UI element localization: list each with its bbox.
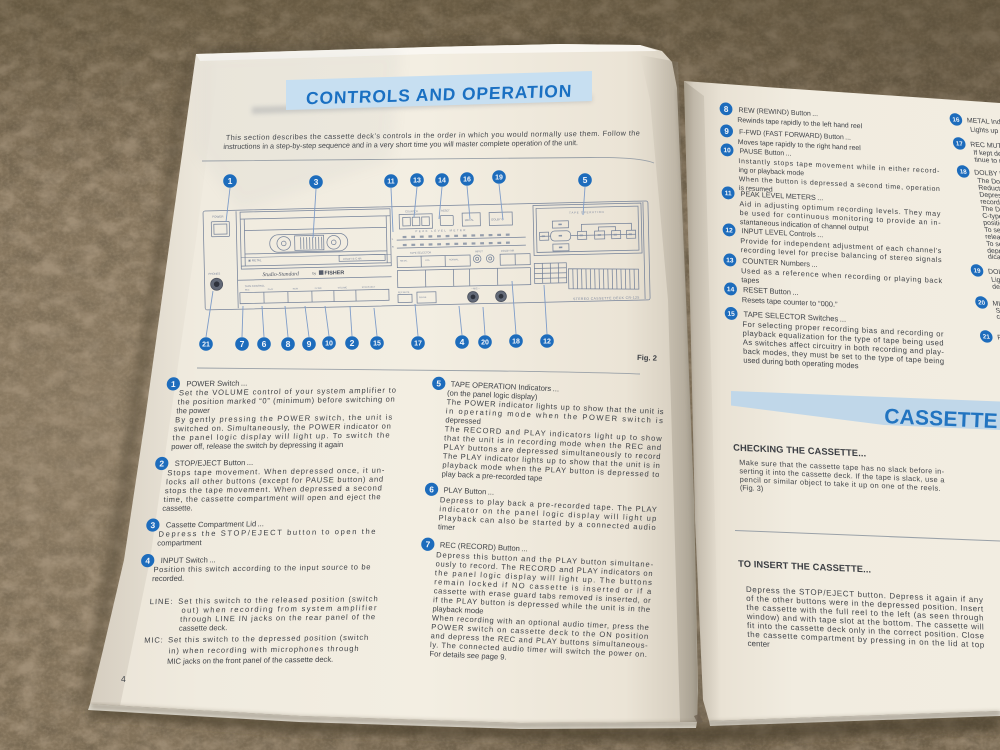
- svg-text:16: 16: [463, 176, 471, 183]
- svg-text:through LINE IN jacks on the r: through LINE IN jacks on the rear panel …: [180, 612, 375, 624]
- svg-text:recorded.: recorded.: [152, 574, 185, 583]
- svg-text:REC: REC: [245, 289, 250, 291]
- svg-text:1: 1: [228, 176, 233, 186]
- svg-text:14: 14: [727, 286, 735, 293]
- svg-text:Rewinds tape rapidly to the le: Rewinds tape rapidly to the left hand re…: [737, 117, 862, 130]
- svg-text:2: 2: [159, 458, 164, 468]
- svg-text:PAUSE: PAUSE: [419, 296, 427, 299]
- svg-text:4: 4: [145, 556, 150, 566]
- svg-text:8: 8: [724, 105, 729, 114]
- svg-text:9: 9: [307, 339, 312, 349]
- svg-text:3: 3: [150, 520, 155, 530]
- svg-text:TAPE CONTROL: TAPE CONTROL: [245, 284, 266, 288]
- svg-text:timer: timer: [438, 522, 456, 532]
- svg-text:19: 19: [495, 174, 503, 181]
- svg-text:in) when recording with microp: in) when recording with microphones thro…: [168, 644, 358, 655]
- svg-text:STOP/EJECT: STOP/EJECT: [362, 287, 376, 289]
- svg-text:REC MUTE: REC MUTE: [398, 292, 410, 294]
- svg-text:4: 4: [121, 674, 126, 684]
- svg-text:12: 12: [725, 227, 733, 234]
- svg-text:tapes: tapes: [741, 275, 759, 285]
- svg-text:METAL: METAL: [400, 259, 408, 262]
- svg-text:time, the cassette compartment: time, the cassette compartment will open…: [163, 492, 380, 504]
- svg-text:4: 4: [460, 337, 465, 347]
- svg-text:17: 17: [414, 340, 422, 347]
- svg-text:CASSETTE: CASSETTE: [884, 405, 999, 433]
- svg-text:Position this switch according: Position this switch according to the in…: [153, 562, 370, 574]
- svg-text:the power: the power: [176, 406, 210, 415]
- svg-text:▣ METAL: ▣ METAL: [248, 258, 262, 262]
- svg-text:power off, release the switch: power off, release the switch by depress…: [171, 440, 343, 451]
- svg-text:L: L: [392, 237, 394, 241]
- svg-text:CHECKING THE CASSETTE...: CHECKING THE CASSETTE...: [733, 443, 866, 459]
- svg-text:Fig. 2: Fig. 2: [637, 353, 657, 363]
- svg-text:12: 12: [543, 338, 551, 345]
- svg-text:cassette.: cassette.: [162, 503, 193, 512]
- svg-text:VOLUME: VOLUME: [338, 287, 348, 289]
- svg-text:10: 10: [325, 340, 333, 347]
- svg-text:13: 13: [413, 177, 421, 184]
- svg-text:PAUSE Button ...: PAUSE Button ...: [740, 148, 792, 158]
- svg-text:15: 15: [727, 311, 735, 318]
- svg-text:13: 13: [726, 257, 734, 264]
- svg-text:TO INSERT THE CASSETTE...: TO INSERT THE CASSETTE...: [738, 559, 871, 575]
- svg-text:8: 8: [286, 339, 291, 349]
- svg-text:14: 14: [438, 177, 446, 184]
- svg-text:PEAK LEVEL METER: PEAK LEVEL METER: [415, 228, 466, 233]
- svg-text:PHONES: PHONES: [208, 272, 220, 276]
- svg-text:POWER: POWER: [212, 215, 224, 219]
- svg-text:MIC jacks on the front panel o: MIC jacks on the front panel of the cass…: [167, 655, 334, 666]
- svg-text:15: 15: [373, 340, 381, 347]
- svg-text:MIC: Set this switch to the de: MIC: Set this switch to the depressed po…: [144, 633, 368, 645]
- svg-text:COUNTER: COUNTER: [405, 209, 418, 213]
- svg-text:NORMAL: NORMAL: [449, 258, 459, 261]
- svg-text:6: 6: [429, 484, 434, 494]
- svg-text:depressed: depressed: [992, 284, 1000, 293]
- svg-text:STOP/EJECT Button ...: STOP/EJECT Button ...: [175, 458, 254, 468]
- svg-text:(Fig. 3): (Fig. 3): [740, 483, 764, 493]
- svg-text:DOLBY B·C NR: DOLBY B·C NR: [343, 256, 362, 260]
- svg-text:10: 10: [723, 147, 731, 154]
- svg-text:INPUT: INPUT: [475, 249, 483, 253]
- svg-text:TAPE SELECTOR: TAPE SELECTOR: [410, 250, 431, 254]
- svg-text:cracking so: cracking so: [996, 314, 1000, 323]
- svg-text:2: 2: [350, 338, 355, 348]
- svg-text:7: 7: [240, 339, 245, 349]
- svg-text:tinue to record bla: tinue to record bla: [974, 157, 1000, 167]
- svg-text:Resets tape counter to “000.”: Resets tape counter to “000.”: [742, 295, 838, 309]
- svg-text:FISHER: FISHER: [324, 270, 344, 276]
- svg-text:by: by: [312, 271, 316, 275]
- svg-text:center: center: [747, 639, 770, 649]
- svg-text:R: R: [392, 245, 394, 249]
- svg-text:Studio-Standard: Studio-Standard: [262, 271, 299, 278]
- svg-text:F.FWD: F.FWD: [315, 288, 322, 290]
- svg-text:REW: REW: [293, 288, 299, 290]
- svg-text:PLAY: PLAY: [268, 288, 274, 291]
- svg-text:1: 1: [171, 379, 176, 389]
- svg-text:11: 11: [725, 190, 732, 197]
- svg-text:18: 18: [512, 338, 520, 345]
- svg-text:cassette deck.: cassette deck.: [179, 623, 228, 633]
- svg-text:Lights up when a m: Lights up when a m: [970, 127, 1000, 137]
- svg-text:—MIC—: —MIC—: [471, 287, 481, 290]
- svg-text:11: 11: [387, 178, 395, 185]
- svg-text:5: 5: [583, 175, 588, 185]
- svg-text:3: 3: [314, 177, 319, 187]
- svg-text:Depress the STOP/EJECT button: Depress the STOP/EJECT button to open th…: [158, 527, 375, 539]
- svg-text:9: 9: [724, 127, 729, 136]
- svg-text:DOLBY C: DOLBY C: [491, 217, 503, 221]
- svg-text:compartment: compartment: [157, 538, 203, 548]
- svg-text:DOLBY NR: DOLBY NR: [501, 248, 514, 252]
- svg-text:dicator lights: dicator lights: [988, 254, 1000, 263]
- svg-text:20: 20: [481, 339, 489, 346]
- svg-text:5: 5: [436, 378, 441, 388]
- svg-text:6: 6: [262, 339, 267, 349]
- svg-text:Used as a reference when recor: Used as a reference when recording or pl…: [741, 266, 943, 285]
- svg-text:REW (REWIND) Button ...: REW (REWIND) Button ...: [738, 107, 818, 118]
- svg-text:RESET: RESET: [441, 208, 450, 212]
- svg-text:TAPE OPERATION: TAPE OPERATION: [569, 210, 604, 215]
- svg-text:the position marked “0” (minim: the position marked “0” (minimum) before…: [178, 395, 395, 407]
- svg-text:7: 7: [425, 539, 430, 549]
- svg-text:21: 21: [202, 341, 210, 348]
- svg-text:CrO₂: CrO₂: [425, 259, 430, 262]
